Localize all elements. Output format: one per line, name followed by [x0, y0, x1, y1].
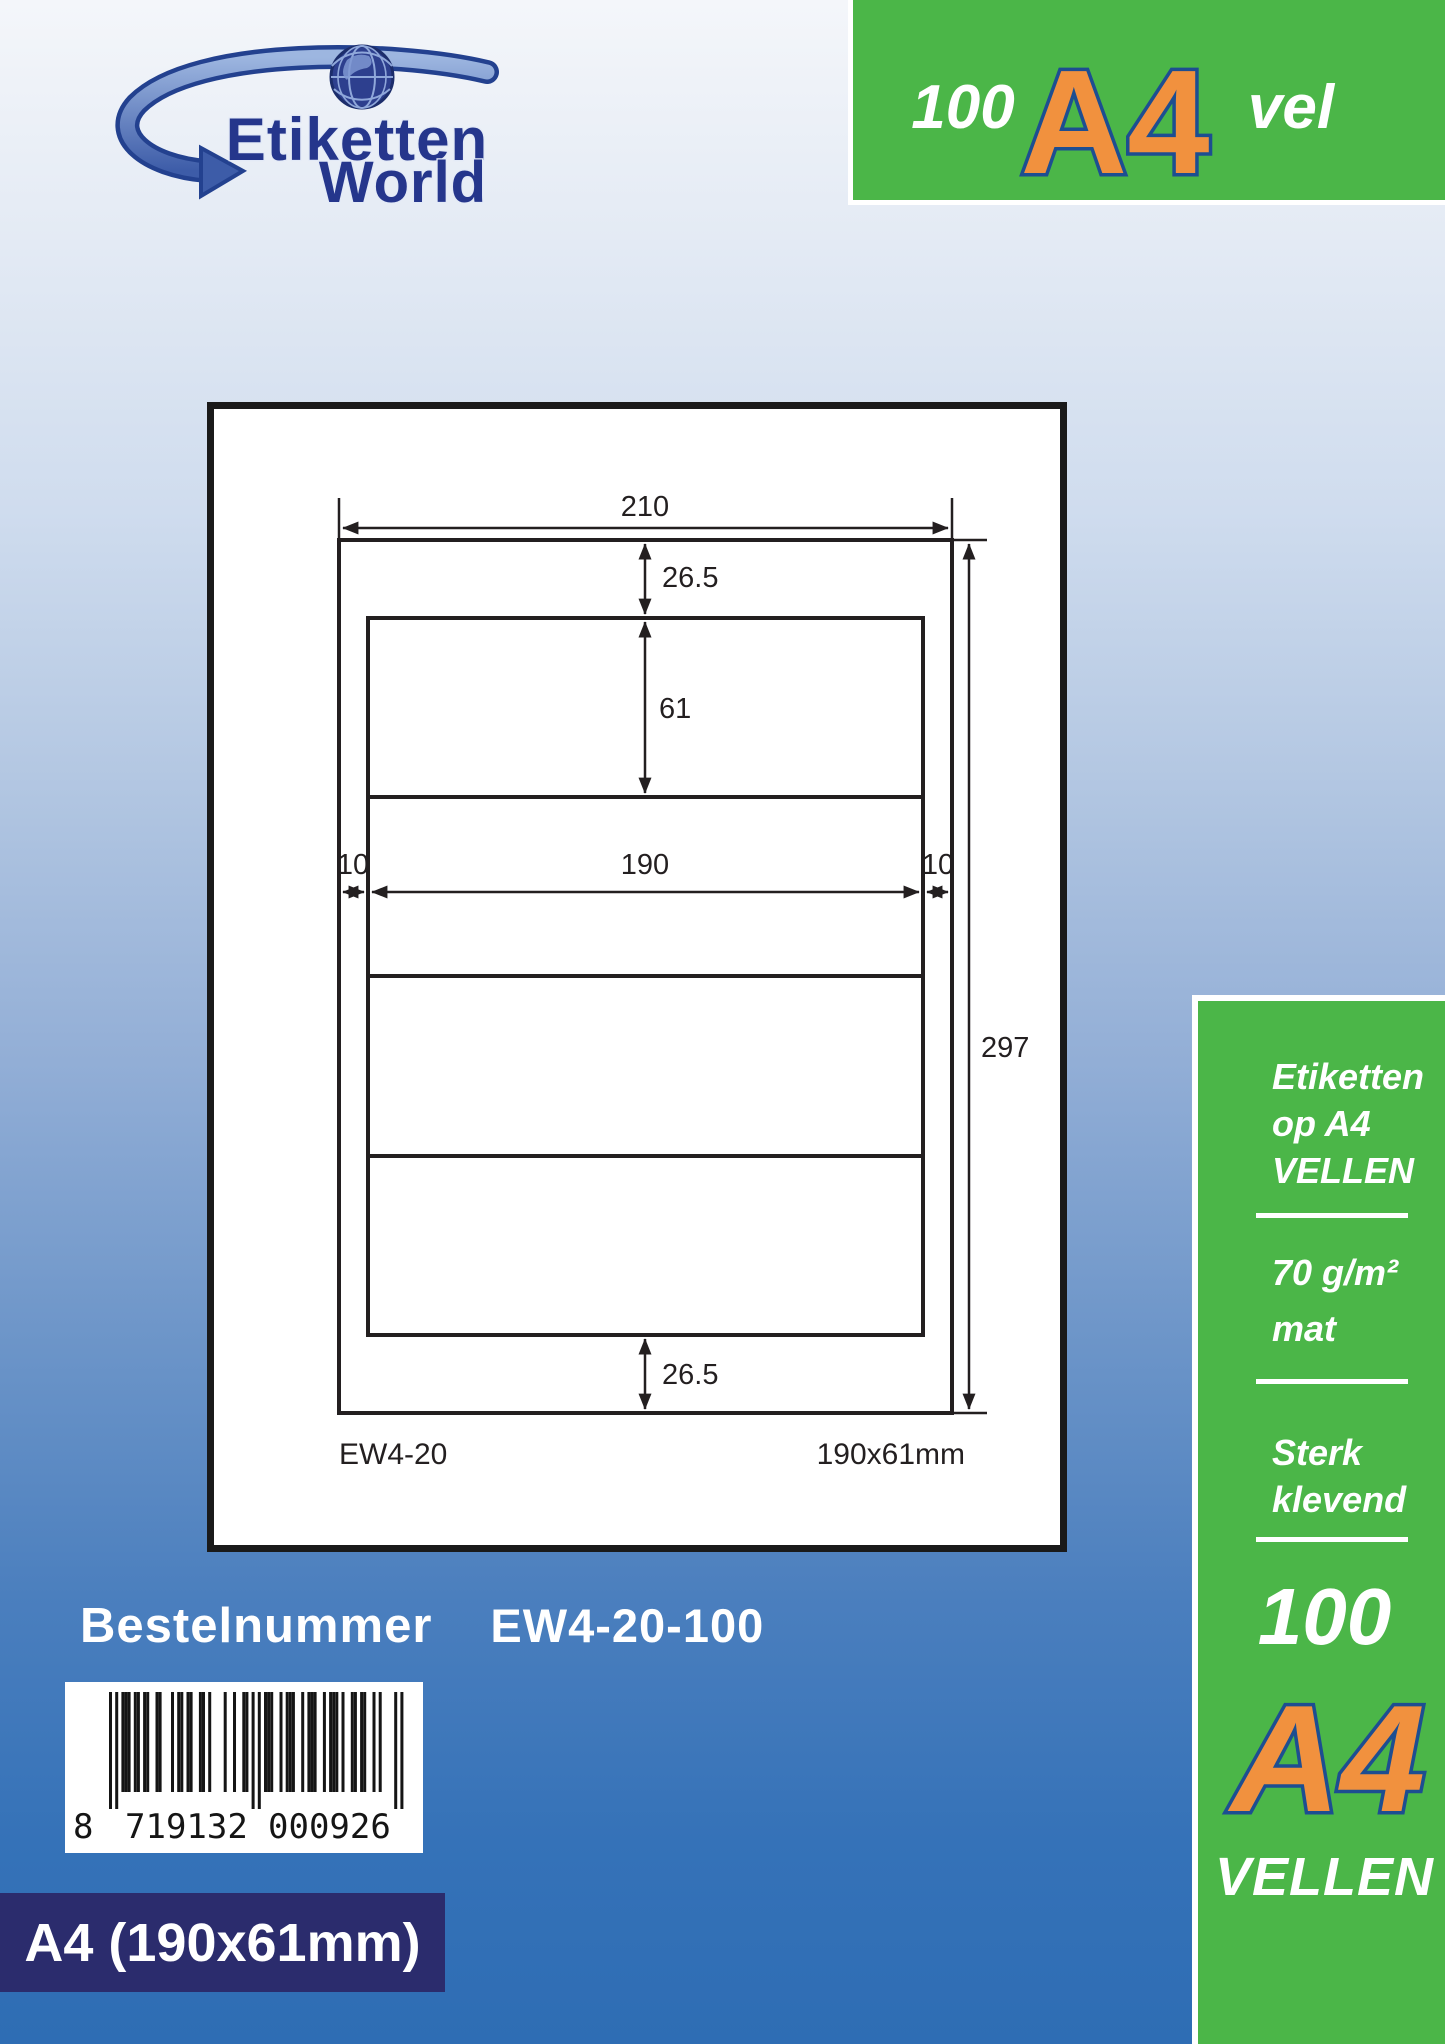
dim-bottom-margin: 26.5: [645, 1339, 718, 1409]
brand-logo: Etiketten World: [75, 20, 505, 210]
product-info-sidebar: Etiketten op A4 VELLEN 70 g/m² mat Sterk…: [1192, 995, 1445, 2044]
divider: [1256, 1213, 1408, 1218]
label-layout-diagram: 210 26.5 61 10 190 10: [207, 402, 1067, 1552]
divider: [1256, 1379, 1408, 1384]
svg-text:26.5: 26.5: [662, 1359, 718, 1391]
svg-text:26.5: 26.5: [662, 562, 718, 594]
divider: [1256, 1537, 1408, 1542]
sidebar-headline: Etiketten op A4 VELLEN: [1272, 1053, 1424, 1194]
sidebar-count: 100: [1198, 1571, 1445, 1663]
barcode-digits-left: 719132: [125, 1807, 248, 1847]
barcode-digits-right: 000926: [268, 1807, 391, 1847]
svg-text:190: 190: [621, 849, 669, 881]
dim-sheet-width: 210: [339, 491, 952, 545]
sidebar-format-badge: A4: [1198, 1661, 1445, 1846]
logo-text-line2: World: [319, 150, 487, 210]
sidebar-finish: mat: [1272, 1305, 1336, 1352]
badge-unit: vel: [1248, 73, 1336, 142]
badge-count: 100: [911, 73, 1014, 142]
product-code: EW4-20: [339, 1438, 447, 1471]
svg-text:297: 297: [981, 1032, 1029, 1064]
svg-text:10: 10: [337, 849, 369, 881]
size-badge: A4 (190x61mm): [0, 1893, 445, 1992]
badge-format: A4: [1020, 40, 1209, 195]
globe-icon: [331, 46, 393, 108]
dim-top-margin: 26.5: [645, 544, 718, 614]
label-size-text: 190x61mm: [817, 1438, 965, 1471]
sidebar-adhesive: Sterk klevend: [1272, 1429, 1406, 1523]
order-number-label: Bestelnummer: [80, 1598, 432, 1654]
dim-label-height: 61: [645, 622, 691, 793]
product-image: Etiketten World 100 A4 vel: [0, 0, 1445, 2044]
svg-text:61: 61: [659, 693, 691, 725]
order-number-value: EW4-20-100: [490, 1598, 764, 1653]
dim-sheet-height: 297: [952, 540, 1029, 1413]
order-number-row: Bestelnummer EW4-20-100: [80, 1598, 764, 1654]
sidebar-format-text: A4: [1227, 1674, 1425, 1844]
svg-text:210: 210: [621, 491, 669, 523]
svg-text:10: 10: [922, 849, 954, 881]
size-badge-text: A4 (190x61mm): [24, 1912, 420, 1974]
dim-margins-row: 10 190 10: [337, 849, 954, 892]
sheet-count-badge-top: 100 A4 vel: [848, 0, 1445, 205]
barcode-digit-prefix: 8: [73, 1807, 93, 1847]
sidebar-weight: 70 g/m²: [1272, 1249, 1398, 1296]
sidebar-unit: VELLEN: [1198, 1846, 1445, 1908]
ean-barcode: 8 719132 000926: [65, 1682, 423, 1853]
